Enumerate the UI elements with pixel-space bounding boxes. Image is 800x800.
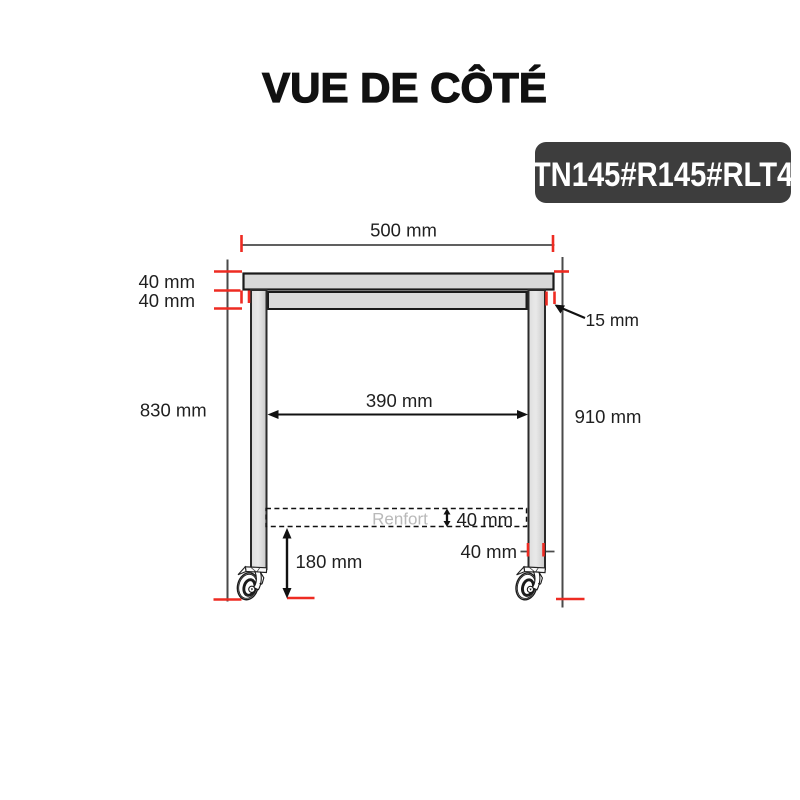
svg-text:390 mm: 390 mm xyxy=(366,390,433,411)
svg-text:180 mm: 180 mm xyxy=(296,551,363,572)
svg-text:40 mm: 40 mm xyxy=(457,509,514,530)
svg-text:Renfort: Renfort xyxy=(372,510,428,529)
svg-text:40 mm: 40 mm xyxy=(460,541,517,562)
svg-text:40 mm: 40 mm xyxy=(138,271,195,292)
svg-text:500 mm: 500 mm xyxy=(370,219,437,240)
svg-text:15 mm: 15 mm xyxy=(586,310,639,330)
svg-text:910 mm: 910 mm xyxy=(575,406,642,427)
svg-text:40 mm: 40 mm xyxy=(138,290,195,311)
svg-text:830 mm: 830 mm xyxy=(140,399,207,420)
